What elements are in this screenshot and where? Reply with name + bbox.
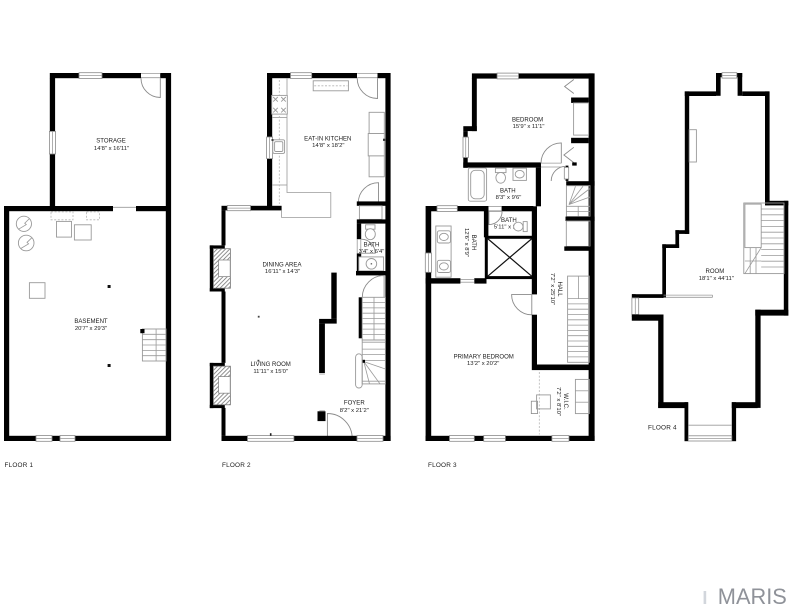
svg-text:BATH: BATH (470, 235, 476, 251)
svg-text:EAT-IN KITCHEN: EAT-IN KITCHEN (304, 137, 351, 143)
svg-text:3'4" x 6'4": 3'4" x 6'4" (359, 249, 385, 255)
svg-text:13'2" x 20'2": 13'2" x 20'2" (467, 361, 499, 367)
svg-text:ROOM: ROOM (705, 269, 724, 275)
svg-text:STORAGE: STORAGE (96, 139, 125, 145)
svg-text:8'2" x 21'2": 8'2" x 21'2" (340, 408, 369, 414)
svg-text:14'8" x 18'2": 14'8" x 18'2" (312, 143, 344, 149)
svg-text:BATH: BATH (501, 218, 517, 224)
svg-text:18'1" x 44'11": 18'1" x 44'11" (699, 276, 734, 282)
svg-text:14'8" x 16'11": 14'8" x 16'11" (94, 146, 129, 152)
svg-text:MARIS: MARIS (718, 584, 787, 609)
svg-text:FLOOR 2: FLOOR 2 (222, 462, 251, 469)
svg-text:HALL: HALL (556, 281, 562, 297)
svg-text:12'6" x 8'9": 12'6" x 8'9" (463, 228, 469, 257)
svg-text:15'9" x 11'1": 15'9" x 11'1" (513, 124, 545, 130)
svg-text:20'7" x 29'3": 20'7" x 29'3" (75, 326, 107, 332)
svg-text:W.I.C.: W.I.C. (562, 393, 568, 410)
svg-text:8'3" x 9'6": 8'3" x 9'6" (496, 195, 522, 201)
svg-text:FLOOR 4: FLOOR 4 (648, 424, 677, 431)
svg-text:BASEMENT: BASEMENT (74, 319, 108, 325)
svg-text:11'11" x 15'0": 11'11" x 15'0" (253, 369, 288, 375)
svg-text:BATH: BATH (500, 188, 516, 194)
svg-text:LIVING ROOM: LIVING ROOM (251, 362, 291, 368)
svg-text:DINING AREA: DINING AREA (263, 262, 303, 268)
svg-text:FOYER: FOYER (344, 401, 365, 407)
svg-text:FLOOR 1: FLOOR 1 (5, 462, 34, 469)
svg-text:FLOOR 3: FLOOR 3 (428, 462, 457, 469)
svg-text:7'2" x 25'10": 7'2" x 25'10" (549, 273, 555, 305)
svg-text:PRIMARY BEDROOM: PRIMARY BEDROOM (454, 354, 514, 360)
svg-text:BEDROOM: BEDROOM (512, 117, 543, 123)
svg-text:BATH: BATH (364, 242, 380, 248)
svg-text:7'2" x 8'10": 7'2" x 8'10" (555, 387, 561, 416)
svg-text:16'11" x 14'3": 16'11" x 14'3" (265, 269, 300, 275)
